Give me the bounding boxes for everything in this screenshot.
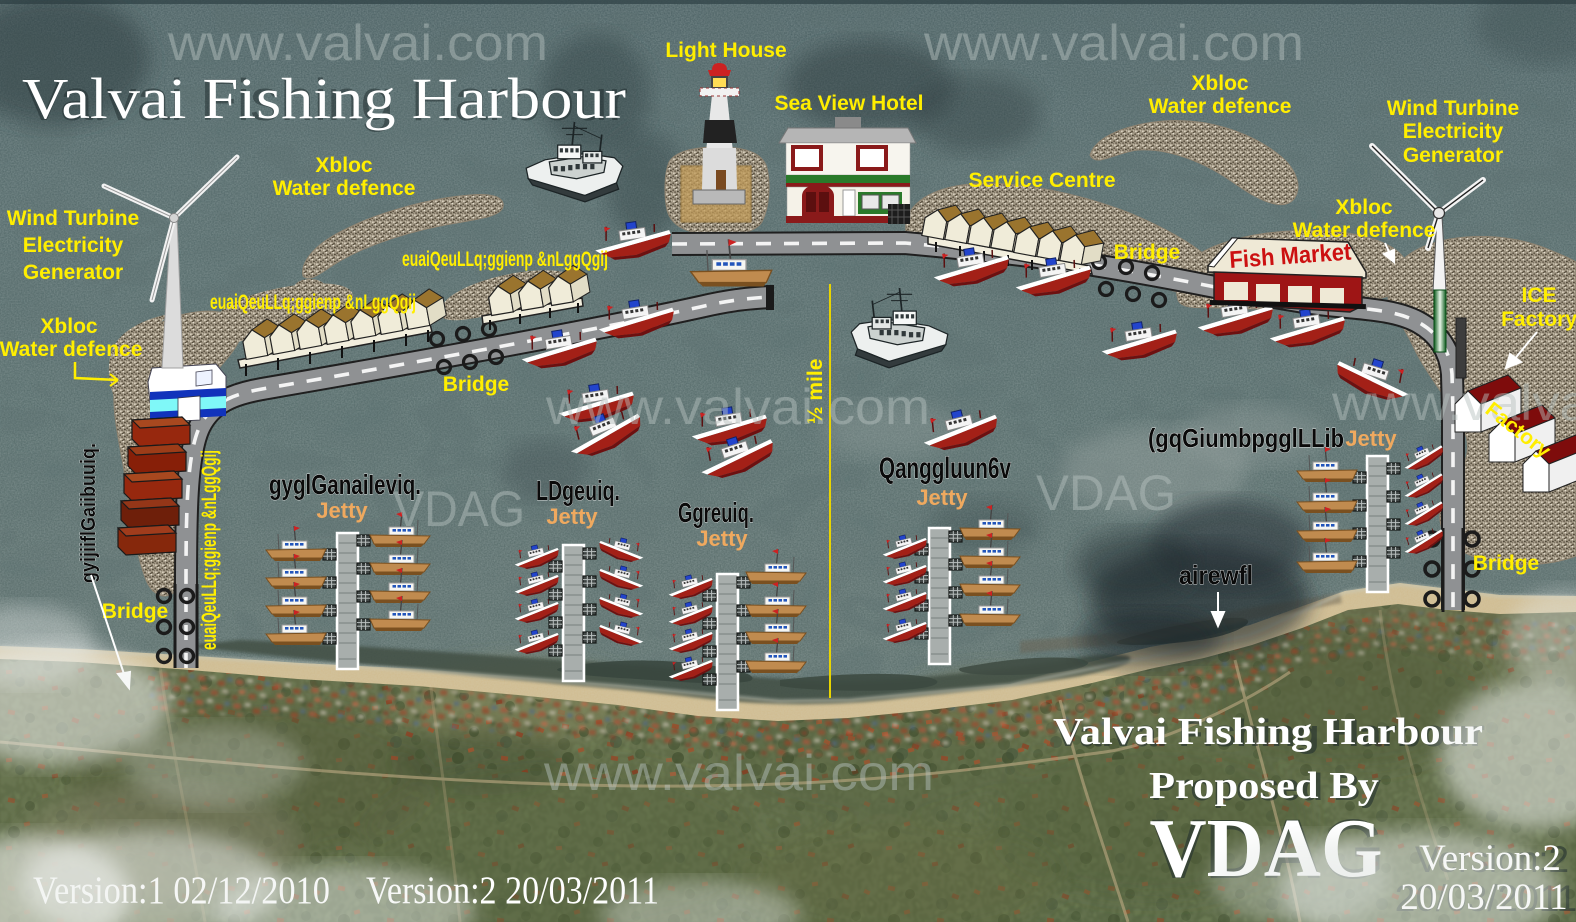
svg-text:Qanggluun6v: Qanggluun6v: [879, 452, 1011, 485]
svg-text:Water defence: Water defence: [0, 338, 142, 361]
svg-text:www.valvai.com: www.valvai.com: [167, 15, 548, 71]
svg-text:Water defence: Water defence: [1149, 95, 1292, 118]
svg-text:gyglGanaiIeviq.: gyglGanaiIeviq.: [269, 469, 421, 500]
svg-text:airewfl: airewfl: [1179, 560, 1253, 590]
svg-text:Xbloc: Xbloc: [1335, 196, 1392, 219]
svg-text:Jetty: Jetty: [546, 504, 598, 529]
svg-text:www.valvai.com: www.valvai.com: [545, 379, 930, 435]
svg-text:Bridge: Bridge: [1473, 552, 1540, 575]
svg-text:LDgeuiq.: LDgeuiq.: [536, 475, 620, 506]
svg-text:Bridge: Bridge: [443, 373, 510, 396]
svg-text:Water defence: Water defence: [1293, 219, 1436, 242]
svg-text:euaiQeuLLq;ggienp &nLggQgij: euaiQeuLLq;ggienp &nLggQgij: [402, 248, 608, 271]
svg-text:Jetty: Jetty: [916, 485, 968, 510]
svg-text:Service Centre: Service Centre: [968, 169, 1115, 192]
svg-text:Ggreuiq.: Ggreuiq.: [678, 497, 754, 528]
svg-text:www.valvai: www.valvai: [1331, 375, 1576, 431]
svg-text:ICE: ICE: [1521, 284, 1556, 307]
svg-text:www.valvai.com: www.valvai.com: [543, 745, 934, 801]
svg-text:Bridge: Bridge: [102, 600, 169, 623]
svg-text:Generator: Generator: [23, 261, 123, 284]
svg-text:Electricity: Electricity: [23, 234, 124, 257]
svg-text:euaiQeuLLq;ggienp &nLggQgij: euaiQeuLLq;ggienp &nLggQgij: [198, 450, 221, 650]
svg-text:Valvai Fishing Harbour: Valvai Fishing Harbour: [22, 66, 626, 131]
svg-text:Wind Turbine: Wind Turbine: [7, 207, 139, 230]
svg-text:Xbloc: Xbloc: [1191, 72, 1248, 95]
svg-text:Light House: Light House: [665, 39, 786, 62]
svg-text:Xbloc: Xbloc: [315, 154, 372, 177]
svg-text:Water defence: Water defence: [273, 177, 416, 200]
svg-text:euaiQeuLLq;ggienp &nLggQgij: euaiQeuLLq;ggienp &nLggQgij: [210, 291, 416, 314]
svg-text:Jetty: Jetty: [1345, 426, 1397, 451]
svg-text:Electricity: Electricity: [1403, 120, 1504, 143]
svg-text:Xbloc: Xbloc: [40, 315, 97, 338]
svg-text:www.valvai.com: www.valvai.com: [923, 15, 1304, 71]
svg-text:Valvai Fishing Harbour: Valvai Fishing Harbour: [1053, 711, 1483, 753]
svg-text:Jetty: Jetty: [316, 498, 368, 523]
svg-text:Jetty: Jetty: [696, 526, 748, 551]
svg-text:Bridge: Bridge: [1114, 241, 1181, 264]
svg-text:Proposed By: Proposed By: [1149, 765, 1379, 807]
svg-text:Sea View Hotel: Sea View Hotel: [774, 92, 923, 115]
svg-text:Generator: Generator: [1403, 144, 1503, 167]
svg-text:gyijiiflGaiibuuiq.: gyijiiflGaiibuuiq.: [78, 443, 100, 583]
svg-text:VDAG: VDAG: [1036, 465, 1176, 521]
svg-text:(gqGiumbpgglLLib: (gqGiumbpgglLLib: [1148, 423, 1344, 453]
svg-text:Factory: Factory: [1501, 308, 1576, 331]
svg-text:Wind Turbine: Wind Turbine: [1387, 97, 1519, 120]
